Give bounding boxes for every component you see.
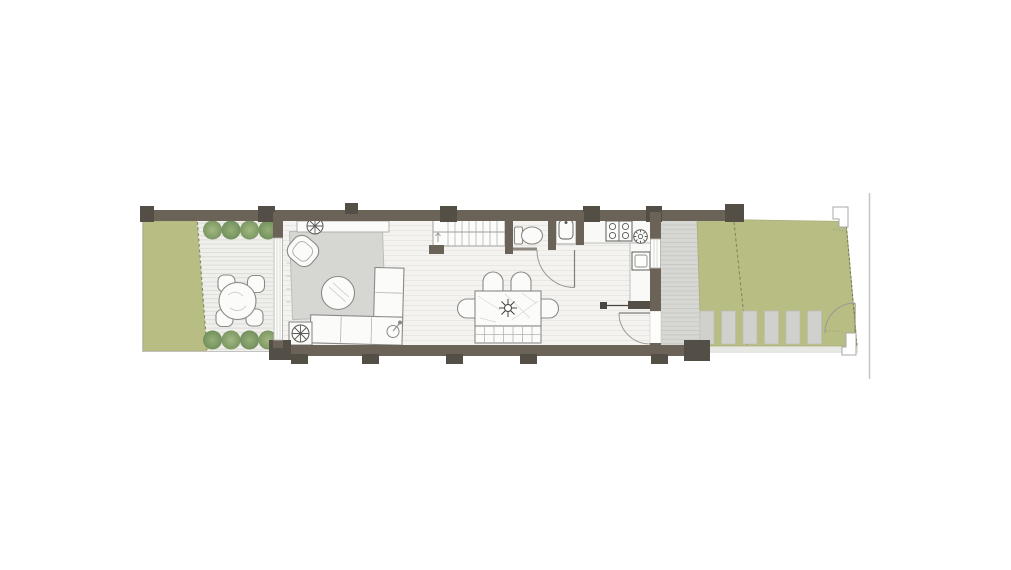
wc-wall-left <box>505 212 513 254</box>
floor-plan-canvas <box>0 0 1011 570</box>
stepping-stone <box>722 311 736 344</box>
left-garden <box>143 210 284 352</box>
left-lawn <box>143 221 207 351</box>
left-facade-glazing <box>274 238 283 340</box>
shrub <box>203 221 222 240</box>
terrace-table <box>219 283 256 320</box>
right-wall-mid <box>650 268 661 311</box>
hob <box>606 221 632 241</box>
closet-wall-right <box>576 212 584 245</box>
shrub <box>240 221 259 240</box>
kitchen-sink <box>634 230 648 244</box>
stepping-stone <box>743 311 757 344</box>
wc-wall-right <box>548 212 556 250</box>
left-wall-lower <box>273 340 283 348</box>
stair-wall-stub <box>429 245 444 254</box>
table-centerpiece <box>499 299 517 317</box>
kitchen-end-wall-stub <box>628 301 652 309</box>
dining-bench <box>475 326 541 343</box>
stepping-stone <box>786 311 800 344</box>
shrub <box>222 221 241 240</box>
toilet-bowl <box>522 227 543 244</box>
kitchen-window <box>651 239 661 268</box>
stepping-stone <box>808 311 822 344</box>
left-wall-upper <box>273 212 283 238</box>
shrub <box>240 331 259 350</box>
shrub <box>203 331 222 350</box>
dining-chair <box>539 299 559 318</box>
right-wall-upper <box>650 212 661 239</box>
washbasin-tap <box>565 221 568 224</box>
rear-patio-strip <box>661 218 701 346</box>
side-table-plant <box>289 322 312 345</box>
coffee-table <box>322 277 355 310</box>
right-wall-lower <box>650 343 661 348</box>
floor-plan <box>0 0 1011 570</box>
staircase <box>433 218 505 246</box>
shrub <box>222 331 241 350</box>
bottom-wall <box>273 345 708 356</box>
right-garden <box>660 207 858 355</box>
stepping-stone <box>765 311 779 344</box>
rear-door-opening <box>650 311 661 344</box>
stepping-stone <box>700 311 714 344</box>
dining-chair <box>458 299 478 318</box>
oven <box>632 252 650 270</box>
light-switch <box>600 302 607 309</box>
sofa-bottom-section <box>310 315 403 345</box>
